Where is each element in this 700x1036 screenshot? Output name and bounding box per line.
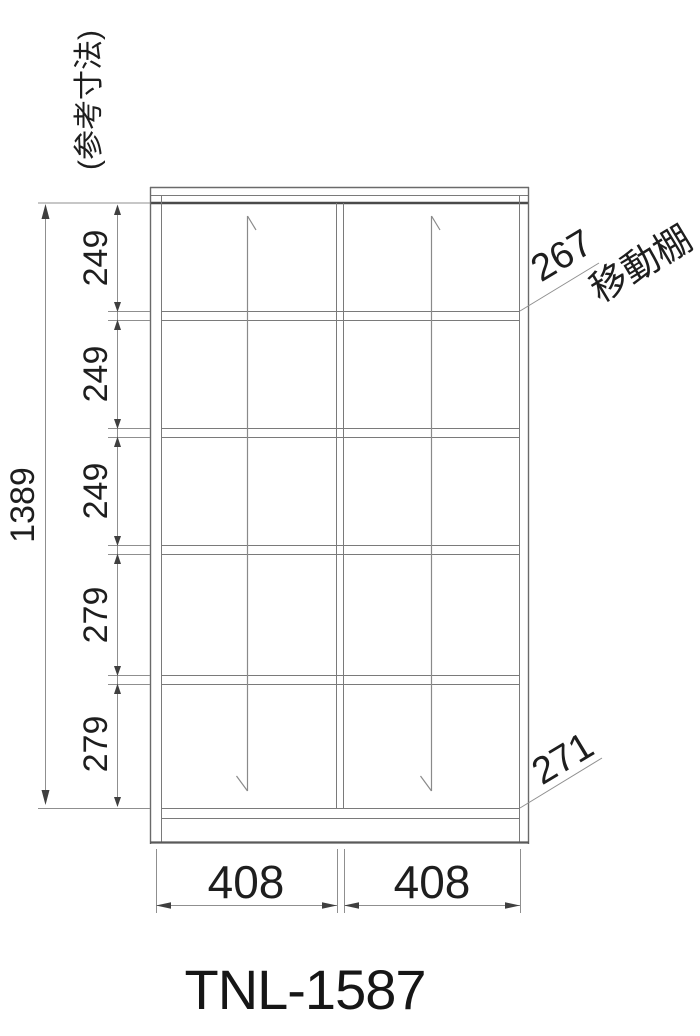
tick-up xyxy=(114,554,121,565)
column-width-label-left: 408 xyxy=(208,859,285,905)
tick-down xyxy=(114,666,121,676)
overall-height-label: 1389 xyxy=(6,467,40,543)
shelf-gap-label-3: 249 xyxy=(79,463,113,520)
tick-down xyxy=(114,797,121,807)
shelf-gap-label-2: 249 xyxy=(79,346,113,403)
movement-arrow-top-barb xyxy=(432,216,441,230)
model-number: TNL-1587 xyxy=(184,962,425,1018)
tick-up xyxy=(114,437,121,448)
shelf-gap-label-4: 279 xyxy=(79,587,113,644)
arrowhead-left xyxy=(344,902,359,909)
column-width-label-right: 408 xyxy=(394,859,471,905)
tick-up xyxy=(114,320,121,331)
tick-up xyxy=(114,205,121,216)
arrowhead-left xyxy=(156,902,171,909)
tick-down xyxy=(114,536,121,546)
arrowhead-right xyxy=(322,902,337,909)
leader-lines xyxy=(520,263,602,808)
tick-down xyxy=(114,302,121,312)
shelf-gap-label-1: 249 xyxy=(79,230,113,287)
tick-up xyxy=(114,684,121,695)
technical-drawing-canvas: (参考寸法) 1389 249 249 249 279 279 267 移動棚 … xyxy=(0,0,700,1036)
shelf-movement-arrows xyxy=(237,216,441,791)
arrowhead-right xyxy=(505,902,520,909)
movement-arrow-bottom-barb xyxy=(421,776,432,791)
shelves xyxy=(161,312,520,685)
movement-arrow-top-barb xyxy=(248,216,257,230)
movement-arrow-bottom-barb xyxy=(237,776,248,791)
shelf-gap-label-5: 279 xyxy=(79,716,113,773)
arrowhead-up xyxy=(42,204,50,219)
cabinet-frame xyxy=(150,187,529,844)
arrowhead-down xyxy=(42,790,50,805)
reference-note: (参考寸法) xyxy=(75,30,105,170)
tick-down xyxy=(114,419,121,429)
center-divider xyxy=(337,203,344,808)
